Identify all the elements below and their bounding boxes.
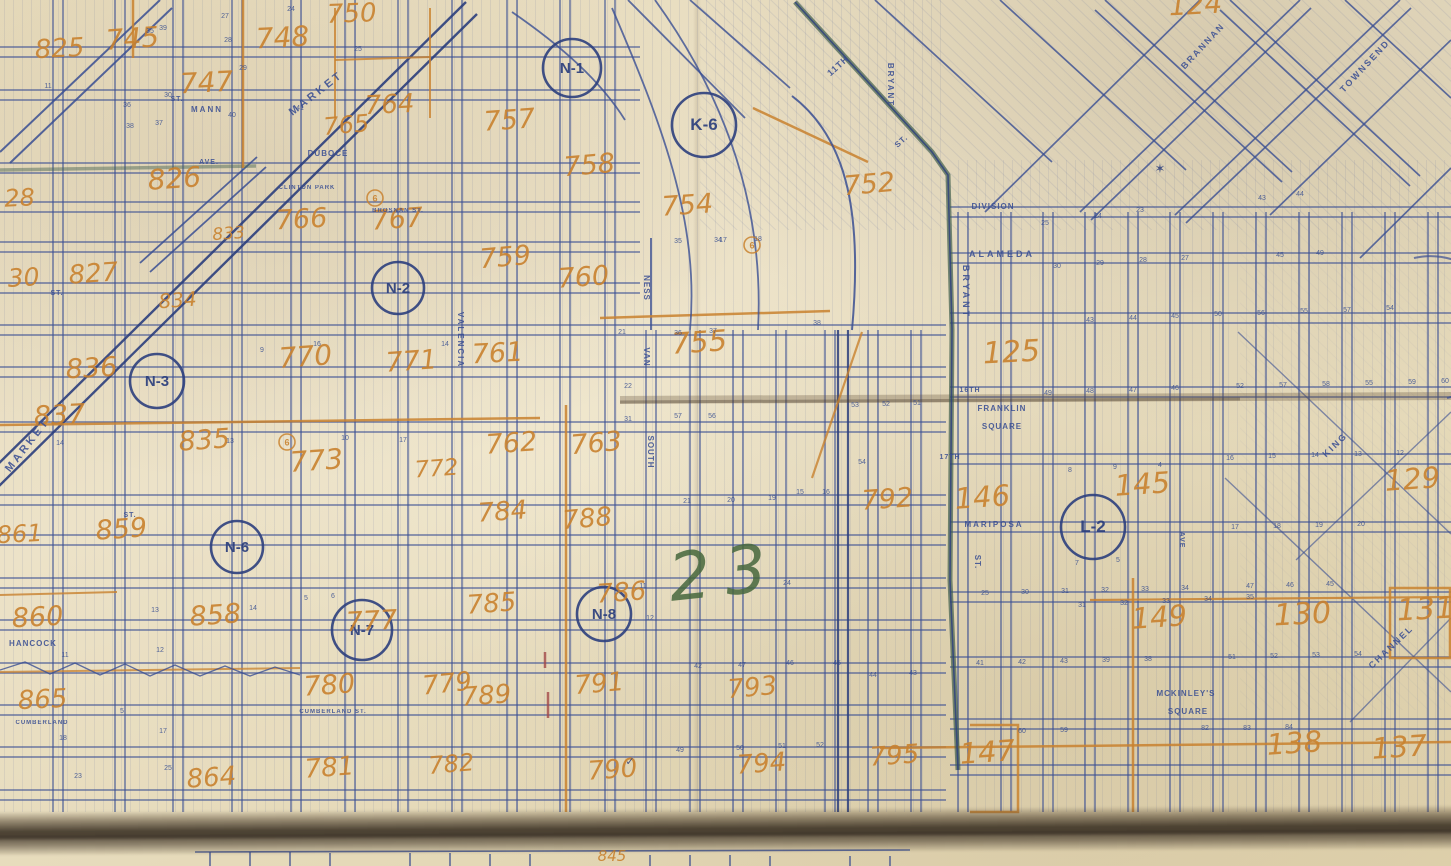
street-label: BRYANT bbox=[886, 63, 895, 107]
block-number: 147 bbox=[959, 733, 1017, 771]
block-number: 859 bbox=[95, 512, 149, 547]
lot-number: 4 bbox=[1158, 462, 1162, 469]
block-number: 748 bbox=[255, 20, 310, 56]
lot-number: 13 bbox=[226, 438, 234, 445]
block-number: 835 bbox=[178, 423, 232, 458]
block-number: 858 bbox=[189, 598, 243, 633]
block-number: 125 bbox=[982, 334, 1041, 372]
lot-number: 33 bbox=[1162, 598, 1170, 605]
block-number: 833 bbox=[212, 223, 246, 245]
block-number: 780 bbox=[303, 668, 357, 703]
lot-number: 52 bbox=[1270, 653, 1278, 660]
lot-number: 44 bbox=[1129, 315, 1137, 322]
lot-number: 46 bbox=[1171, 385, 1179, 392]
lot-number: 31 bbox=[1061, 588, 1069, 595]
lot-number: 43 bbox=[1086, 317, 1094, 324]
lot-number: 25 bbox=[981, 590, 989, 597]
block-number: 864 bbox=[186, 761, 238, 794]
lot-number: 7 bbox=[1075, 560, 1079, 567]
lot-number: 17 bbox=[719, 237, 727, 244]
street-label: VALENCIA bbox=[456, 312, 465, 368]
lot-number: 58 bbox=[1322, 381, 1330, 388]
lot-number: 15 bbox=[796, 489, 804, 496]
lot-number: 13 bbox=[1354, 451, 1362, 458]
lot-number: 46 bbox=[786, 660, 794, 667]
lot-number: 8 bbox=[1068, 467, 1072, 474]
lot-number: 19 bbox=[768, 495, 776, 502]
block-number: 129 bbox=[1384, 460, 1442, 498]
lot-number: 54 bbox=[1354, 651, 1362, 658]
block-number: 788 bbox=[561, 502, 613, 536]
block-number: 750 bbox=[326, 0, 377, 30]
block-number: 766 bbox=[275, 203, 328, 237]
block-number: 145 bbox=[1114, 465, 1172, 503]
lot-number: 39 bbox=[159, 25, 167, 32]
block-number: 795 bbox=[869, 739, 921, 772]
lot-number: 36 bbox=[123, 102, 131, 109]
street-label: MANN bbox=[191, 105, 223, 114]
lot-number: 84 bbox=[1285, 724, 1293, 731]
lot-number: 14 bbox=[441, 341, 449, 348]
lot-number: 35 bbox=[1246, 594, 1254, 601]
block-number: 793 bbox=[726, 671, 778, 705]
street-label: ST. bbox=[123, 512, 136, 519]
block-number: 777 bbox=[345, 605, 398, 639]
street-label: ST. bbox=[170, 96, 183, 103]
lot-number: 27 bbox=[1181, 255, 1189, 262]
block-number: 745 bbox=[105, 20, 161, 57]
lot-number: 60 bbox=[1018, 728, 1026, 735]
lot-number: 29 bbox=[1096, 260, 1104, 267]
lot-number: 5 bbox=[120, 708, 124, 715]
block-number: 762 bbox=[485, 426, 539, 461]
lot-number: 53 bbox=[851, 402, 859, 409]
lot-number: 13 bbox=[151, 607, 159, 614]
lot-number: 49 bbox=[676, 747, 684, 754]
block-number: 827 bbox=[68, 257, 120, 290]
lot-number: 37 bbox=[155, 120, 163, 127]
lot-number: 37 bbox=[709, 328, 717, 335]
lot-texture-layer bbox=[0, 0, 1451, 812]
lot-number: 12 bbox=[156, 647, 164, 654]
lot-number: 43 bbox=[909, 670, 917, 677]
lot-number: 14 bbox=[1311, 452, 1319, 459]
street-label: VAN bbox=[642, 347, 651, 366]
lot-number: 18 bbox=[754, 236, 762, 243]
block-number: 826 bbox=[147, 160, 203, 197]
block-number: 28 bbox=[4, 183, 36, 213]
lot-number: 82 bbox=[1201, 725, 1209, 732]
block-number: 30 bbox=[7, 262, 40, 293]
block-number: 784 bbox=[477, 495, 529, 528]
lot-number: 45 bbox=[1171, 313, 1179, 320]
street-label: BROSNAN ST. bbox=[372, 208, 424, 214]
block-number: 794 bbox=[736, 747, 788, 780]
lot-number: 52 bbox=[882, 401, 890, 408]
lot-number: 6 bbox=[331, 593, 335, 600]
block-number: 759 bbox=[478, 240, 532, 275]
lot-number: 22 bbox=[624, 383, 632, 390]
block-number: 146 bbox=[954, 478, 1012, 516]
lot-number: 55 bbox=[1300, 308, 1308, 315]
lot-number: 17 bbox=[1231, 524, 1239, 531]
block-number: 137 bbox=[1371, 728, 1429, 766]
block-number: 825 bbox=[34, 33, 85, 66]
lot-number: 56 bbox=[708, 413, 716, 420]
lot-number: 34 bbox=[1204, 596, 1212, 603]
lot-number: 25 bbox=[164, 765, 172, 772]
lot-number: 38 bbox=[126, 123, 134, 130]
block-number: 860 bbox=[11, 601, 64, 635]
street-label: CLINTON PARK bbox=[279, 185, 336, 191]
block-number: 770 bbox=[278, 338, 334, 375]
street-label: SQUARE bbox=[1168, 707, 1208, 716]
street-label: CUMBERLAND ST. bbox=[299, 709, 366, 715]
lot-number: 60 bbox=[1441, 378, 1449, 385]
street-label: FRANKLIN bbox=[978, 404, 1027, 413]
street-label: ST. bbox=[973, 555, 982, 570]
block-number: 865 bbox=[17, 684, 68, 717]
lot-number: 47 bbox=[1246, 583, 1254, 590]
block-number: 758 bbox=[562, 148, 616, 183]
lot-number: 23 bbox=[1136, 207, 1144, 214]
lot-number: 17 bbox=[159, 728, 167, 735]
block-number: 834 bbox=[158, 287, 198, 314]
map-annotation-mark: ✶ bbox=[1155, 161, 1166, 176]
district-circle-label: K-6 bbox=[690, 115, 717, 134]
lot-number: 51 bbox=[1228, 654, 1236, 661]
block-number: 149 bbox=[1131, 598, 1189, 636]
lot-number: 28 bbox=[224, 37, 232, 44]
lot-number: 44 bbox=[1296, 191, 1304, 198]
lot-number: 54 bbox=[858, 459, 866, 466]
lot-number: 54 bbox=[1386, 305, 1394, 312]
lot-number: 45 bbox=[1326, 581, 1334, 588]
lot-number: 53 bbox=[1312, 652, 1320, 659]
lot-number: 46 bbox=[1286, 582, 1294, 589]
lot-number: 14 bbox=[249, 605, 257, 612]
block-number: 765 bbox=[322, 109, 370, 141]
block-number: 761 bbox=[471, 337, 524, 371]
lot-number: 24 bbox=[783, 580, 791, 587]
street-label: AVE bbox=[1178, 532, 1185, 549]
street-label: 17TH bbox=[939, 454, 960, 461]
lot-number: 18 bbox=[59, 735, 67, 742]
map-fold-crease bbox=[0, 805, 1451, 855]
lot-number: 25 bbox=[1041, 220, 1049, 227]
lot-number: 5 bbox=[304, 595, 308, 602]
street-label: DUBOCE bbox=[308, 149, 349, 158]
lot-number: 20 bbox=[1357, 521, 1365, 528]
lot-number: 59 bbox=[1408, 379, 1416, 386]
street-label: BRYANT bbox=[961, 265, 971, 319]
lot-number: 30 bbox=[1021, 589, 1029, 596]
block-number: 789 bbox=[461, 679, 513, 712]
map-canvas: N-1K-6N-2N-3N-6N-7N-8L-26668257457487507… bbox=[0, 0, 1451, 866]
lot-number: 45 bbox=[833, 660, 841, 667]
lot-number: 15 bbox=[1268, 453, 1276, 460]
lot-number: 43 bbox=[1258, 195, 1266, 202]
lot-number: 49 bbox=[1316, 250, 1324, 257]
street-label: SOUTH bbox=[646, 436, 655, 469]
lot-number: 47 bbox=[1129, 387, 1137, 394]
district-circle-label: L-2 bbox=[1080, 517, 1106, 536]
lot-number: 16 bbox=[822, 489, 830, 496]
block-number: 754 bbox=[661, 188, 715, 223]
lot-number: 28 bbox=[1139, 257, 1147, 264]
lot-number: 25 bbox=[354, 46, 362, 53]
street-label: ALAMEDA bbox=[969, 249, 1035, 259]
district-circle-label: N-1 bbox=[560, 60, 584, 77]
lot-number: 30 bbox=[1053, 263, 1061, 270]
lot-number: 30 bbox=[164, 92, 172, 99]
block-number: 752 bbox=[842, 167, 896, 202]
block-number: 861 bbox=[0, 519, 43, 549]
street-label: AVE. bbox=[199, 159, 219, 166]
lot-number: 32 bbox=[1120, 600, 1128, 607]
lot-number: 21 bbox=[618, 329, 626, 336]
lot-number: 57 bbox=[1343, 307, 1351, 314]
lot-number: 18 bbox=[1273, 523, 1281, 530]
district-circle-label: N-2 bbox=[386, 280, 410, 297]
lot-number: 9 bbox=[260, 347, 264, 354]
street-label: MCKINLEY'S bbox=[1156, 689, 1215, 698]
block-number: 786 bbox=[596, 576, 648, 609]
lot-number: 14 bbox=[56, 440, 64, 447]
district-handwritten-number: 23 bbox=[665, 528, 784, 616]
lot-number: 23 bbox=[74, 773, 82, 780]
lot-number: 52 bbox=[1236, 383, 1244, 390]
lot-number: 21 bbox=[683, 498, 691, 505]
lot-number: 35 bbox=[146, 28, 154, 35]
street-label: ST. bbox=[50, 290, 63, 297]
lot-number: 57 bbox=[1279, 382, 1287, 389]
lot-number: 48 bbox=[1086, 388, 1094, 395]
block-number: 131 bbox=[1396, 591, 1451, 629]
lot-number: 50 bbox=[1214, 311, 1222, 318]
lot-number: 16 bbox=[1226, 455, 1234, 462]
lot-number: 17 bbox=[399, 437, 407, 444]
lot-number: 33 bbox=[1141, 586, 1149, 593]
block-number: 763 bbox=[569, 426, 623, 461]
block-number: 747 bbox=[179, 65, 234, 101]
map-viewport: N-1K-6N-2N-3N-6N-7N-8L-26668257457487507… bbox=[0, 0, 1451, 866]
lot-number: 29 bbox=[239, 65, 247, 72]
lot-number: 44 bbox=[869, 672, 877, 679]
block-number: 138 bbox=[1266, 724, 1324, 762]
block-number: 836 bbox=[65, 352, 118, 386]
lot-number: 59 bbox=[1060, 727, 1068, 734]
block-number: 782 bbox=[427, 748, 475, 780]
block-number: 785 bbox=[466, 587, 518, 620]
lot-number: 83 bbox=[1243, 725, 1251, 732]
lot-number: 11 bbox=[61, 652, 68, 659]
street-label: SQUARE bbox=[982, 422, 1022, 431]
lot-number: 24 bbox=[287, 6, 295, 13]
block-number: 760 bbox=[557, 260, 611, 295]
block-number: 124 bbox=[1168, 0, 1223, 22]
map-annotation-mark: ✓ bbox=[625, 756, 634, 768]
block-number: 130 bbox=[1273, 596, 1332, 634]
lot-number: 9 bbox=[1113, 464, 1117, 471]
lot-number: 11 bbox=[639, 583, 646, 590]
lot-number: 24 bbox=[1094, 213, 1102, 220]
district-circle-label: N-6 bbox=[225, 539, 249, 556]
block-number: 791 bbox=[573, 667, 625, 701]
block-number: 771 bbox=[385, 344, 439, 379]
lot-number: 19 bbox=[1315, 522, 1323, 529]
street-label: CUMBERLAND bbox=[16, 720, 69, 726]
lot-number: 36 bbox=[674, 330, 682, 337]
lot-number: 5 bbox=[1116, 557, 1120, 564]
lot-number: 20 bbox=[727, 497, 735, 504]
lot-number: 38 bbox=[813, 320, 821, 327]
lot-number: 49 bbox=[1044, 390, 1052, 397]
circled-mark-label: 6 bbox=[372, 194, 377, 204]
lot-number: 41 bbox=[976, 660, 984, 667]
lot-number: 10 bbox=[341, 435, 349, 442]
block-number: 781 bbox=[304, 751, 356, 784]
lot-number: 34 bbox=[1181, 585, 1189, 592]
lot-number: 57 bbox=[674, 413, 682, 420]
street-label: MARIPOSA bbox=[964, 520, 1023, 529]
block-number: 773 bbox=[289, 442, 345, 479]
lot-number: 31 bbox=[624, 416, 632, 423]
lot-number: 39 bbox=[1102, 657, 1110, 664]
lot-number: 41 bbox=[296, 105, 304, 112]
lot-number: 11 bbox=[44, 83, 51, 90]
lot-number: 52 bbox=[816, 742, 824, 749]
lot-number: 51 bbox=[778, 743, 786, 750]
block-number: 757 bbox=[483, 103, 537, 138]
block-number: 764 bbox=[364, 89, 415, 122]
lot-number: 35 bbox=[674, 238, 682, 245]
street-label: 16TH bbox=[959, 387, 980, 394]
lot-number: 42 bbox=[694, 663, 702, 670]
lot-number: 40 bbox=[228, 112, 236, 119]
lot-number: 27 bbox=[221, 13, 229, 20]
lot-number: 56 bbox=[1257, 310, 1265, 317]
lot-number: 47 bbox=[738, 662, 746, 669]
street-label: NESS bbox=[642, 275, 651, 301]
lot-number: 31 bbox=[1078, 602, 1086, 609]
lot-number: 42 bbox=[1018, 659, 1026, 666]
lot-number: 38 bbox=[1144, 656, 1152, 663]
street-label: HANCOCK bbox=[9, 639, 57, 648]
lot-number: 12 bbox=[646, 615, 654, 622]
lot-number: 50 bbox=[736, 745, 744, 752]
district-circle-label: N-3 bbox=[145, 373, 169, 390]
lot-number: 32 bbox=[1101, 587, 1109, 594]
lot-number: 51 bbox=[913, 400, 921, 407]
lot-number: 12 bbox=[1396, 450, 1404, 457]
street-label: DIVISION bbox=[971, 202, 1014, 211]
block-number: 792 bbox=[861, 482, 915, 517]
lot-number: 55 bbox=[1365, 380, 1373, 387]
lot-number: 16 bbox=[313, 341, 321, 348]
block-number: 772 bbox=[414, 455, 460, 484]
lot-number: 45 bbox=[1276, 252, 1284, 259]
lot-number: 43 bbox=[1060, 658, 1068, 665]
block-number: 755 bbox=[671, 323, 729, 361]
